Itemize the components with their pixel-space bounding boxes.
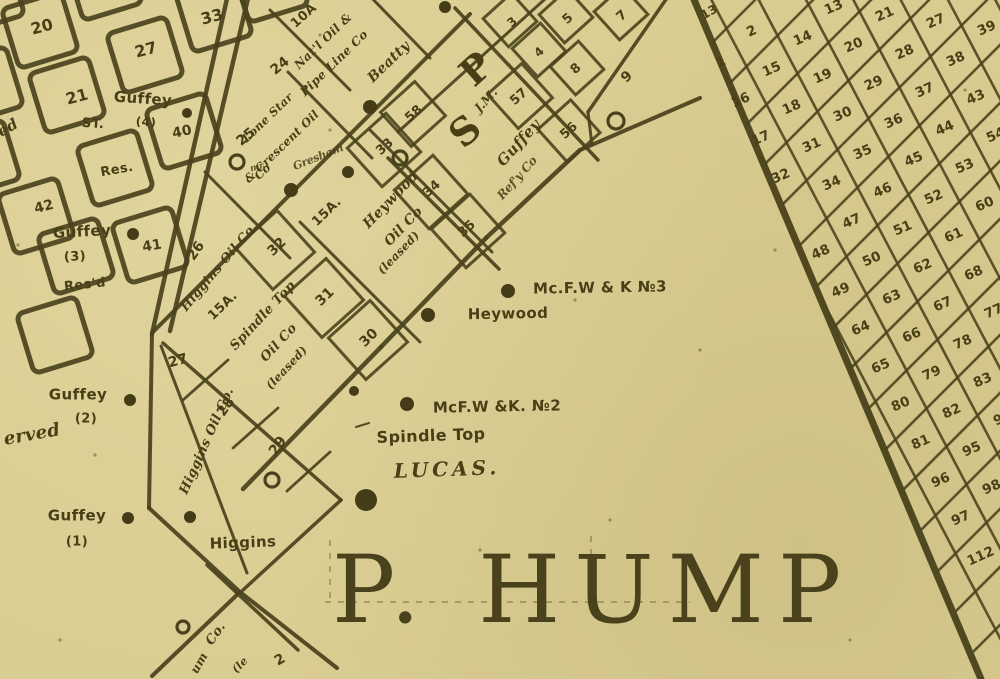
parcel-number: 4 [532, 45, 546, 60]
map-label: (1) [66, 536, 88, 549]
parcel-number: 40 [171, 123, 193, 141]
parcel-number: 41 [141, 237, 163, 254]
grid-number: 64 [850, 319, 873, 339]
scanned-plat-map: 2027332140Res.4241GuffeyST.(4)Guffey(3)R… [0, 0, 1000, 679]
grid-number: 98 [981, 478, 1000, 498]
parcel-number: 56 [558, 120, 580, 142]
grid-number: 77 [983, 302, 1000, 322]
map-label: ST. [81, 117, 104, 132]
grid-number: 51 [892, 219, 915, 239]
grid-number: 1 [714, 55, 728, 71]
parcel-number: 32 [265, 235, 289, 259]
parcel-number: 13 [699, 3, 719, 22]
grid-number: 96 [930, 471, 953, 491]
grid-number: 80 [890, 395, 913, 415]
parcel-number: 3 [505, 15, 519, 30]
map-label: 15A. [206, 289, 240, 323]
map-label: (2) [75, 413, 97, 426]
map-label: Mc.F.W & K №3 [533, 279, 667, 296]
grid-number: 82 [941, 402, 964, 422]
grid-number: 83 [972, 371, 995, 391]
grid-number: 112 [965, 545, 996, 569]
grid-number: 29 [863, 74, 886, 94]
grid-number: 68 [963, 264, 986, 284]
grid-number: 36 [883, 112, 906, 132]
parcel-number: 33 [199, 6, 225, 27]
grid-number: 44 [934, 119, 957, 139]
map-label: (3) [64, 250, 87, 264]
grid-number: 18 [781, 98, 804, 118]
map-label: Guffey [113, 89, 172, 108]
parcel-number: 7 [614, 8, 629, 24]
grid-number: 61 [943, 226, 966, 246]
grid-number: 95 [961, 440, 984, 460]
parcel-number: 5 [560, 11, 575, 27]
map-label: Guffey [52, 223, 111, 241]
grid-number: 37 [914, 81, 937, 101]
grid-number: 50 [861, 250, 884, 270]
grid-number: 15 [761, 60, 784, 80]
grid-number: 14 [792, 29, 815, 49]
parcel-number: 27 [167, 352, 189, 371]
grid-number: 94 [992, 409, 1000, 429]
grid-number: 27 [925, 12, 948, 32]
map-label: 10A [289, 1, 320, 30]
map-label: Guffey [48, 509, 106, 524]
grid-number: 13 [823, 0, 846, 18]
grid-number: 16 [730, 91, 753, 111]
map-label: um [188, 650, 209, 675]
parcel-number: 30 [357, 326, 381, 350]
map-label: erved [2, 421, 61, 449]
map-label: Spindle Top [376, 426, 485, 446]
grid-number: 39 [976, 19, 999, 39]
grid-number: 34 [821, 174, 844, 194]
map-label: P [453, 45, 500, 92]
survey-name-label: P. HUMP [332, 544, 855, 638]
grid-number: 45 [903, 150, 926, 170]
grid-number: 17 [750, 129, 773, 149]
grid-number: 47 [841, 212, 864, 232]
grid-number: 48 [810, 243, 833, 263]
parcel-number: 42 [33, 198, 55, 217]
grid-number: 32 [770, 167, 793, 187]
parcel-number: 31 [313, 285, 337, 309]
grid-number: 43 [965, 88, 988, 108]
grid-number: 52 [923, 188, 946, 208]
grid-number: 66 [901, 326, 924, 346]
parcel-number: 27 [133, 39, 159, 60]
grid-number: 53 [954, 157, 977, 177]
grid-number: 20 [843, 36, 866, 56]
parcel-number: 35 [456, 218, 478, 240]
map-label: Res'd [64, 276, 107, 293]
parcel-number: 9 [619, 69, 636, 86]
grid-number: 31 [801, 136, 824, 156]
parcel-number: 34 [421, 178, 443, 200]
parcel-number: 29 [267, 434, 290, 458]
grid-number: 21 [874, 5, 897, 25]
map-label: Guffey [49, 388, 107, 403]
map-label: (4) [135, 115, 156, 128]
grid-number: 65 [870, 357, 893, 377]
grid-number: 30 [832, 105, 855, 125]
grid-number: 81 [910, 433, 933, 453]
grid-number: 60 [974, 195, 997, 215]
grid-number: 63 [881, 288, 904, 308]
grid-number: 19 [812, 67, 835, 87]
map-label: Heywood [468, 306, 549, 322]
grid-number: 46 [872, 181, 895, 201]
map-label: Higgins [209, 534, 276, 551]
parcel-number: 57 [508, 86, 530, 108]
grid-number: 2 [745, 24, 759, 40]
grid-number: 97 [950, 509, 973, 529]
grid-number: 78 [952, 333, 975, 353]
map-label: LUCAS. [393, 457, 500, 481]
parcel-number: 2 [272, 652, 287, 669]
map-label: (le [230, 655, 250, 675]
map-label: Co. [204, 620, 229, 647]
map-label: ed [0, 116, 21, 139]
grid-number: 28 [894, 43, 917, 63]
map-label: Higgins Oil Co. [178, 386, 237, 497]
parcel-number: 21 [64, 86, 90, 107]
parcel-number: 33 [374, 136, 396, 158]
parcel-number: 20 [29, 16, 55, 37]
grid-number: 38 [945, 50, 968, 70]
parcel-number: 58 [403, 103, 425, 125]
map-label: Gresham [291, 142, 344, 172]
parcel-number: 24 [268, 54, 292, 77]
parcel-number: 8 [568, 61, 583, 77]
grid-number: 62 [912, 257, 935, 277]
parcel-number: 26 [185, 239, 208, 263]
grid-number: 49 [830, 281, 853, 301]
grid-number: 35 [852, 143, 875, 163]
map-label: McF.W &K. №2 [433, 398, 561, 415]
grid-number: 79 [921, 364, 944, 384]
grid-number: 54 [985, 126, 1000, 146]
map-label: 15A. [310, 195, 344, 229]
map-label: Beatty [365, 39, 413, 86]
map-label: Res. [100, 161, 135, 180]
grid-number: 67 [932, 295, 955, 315]
